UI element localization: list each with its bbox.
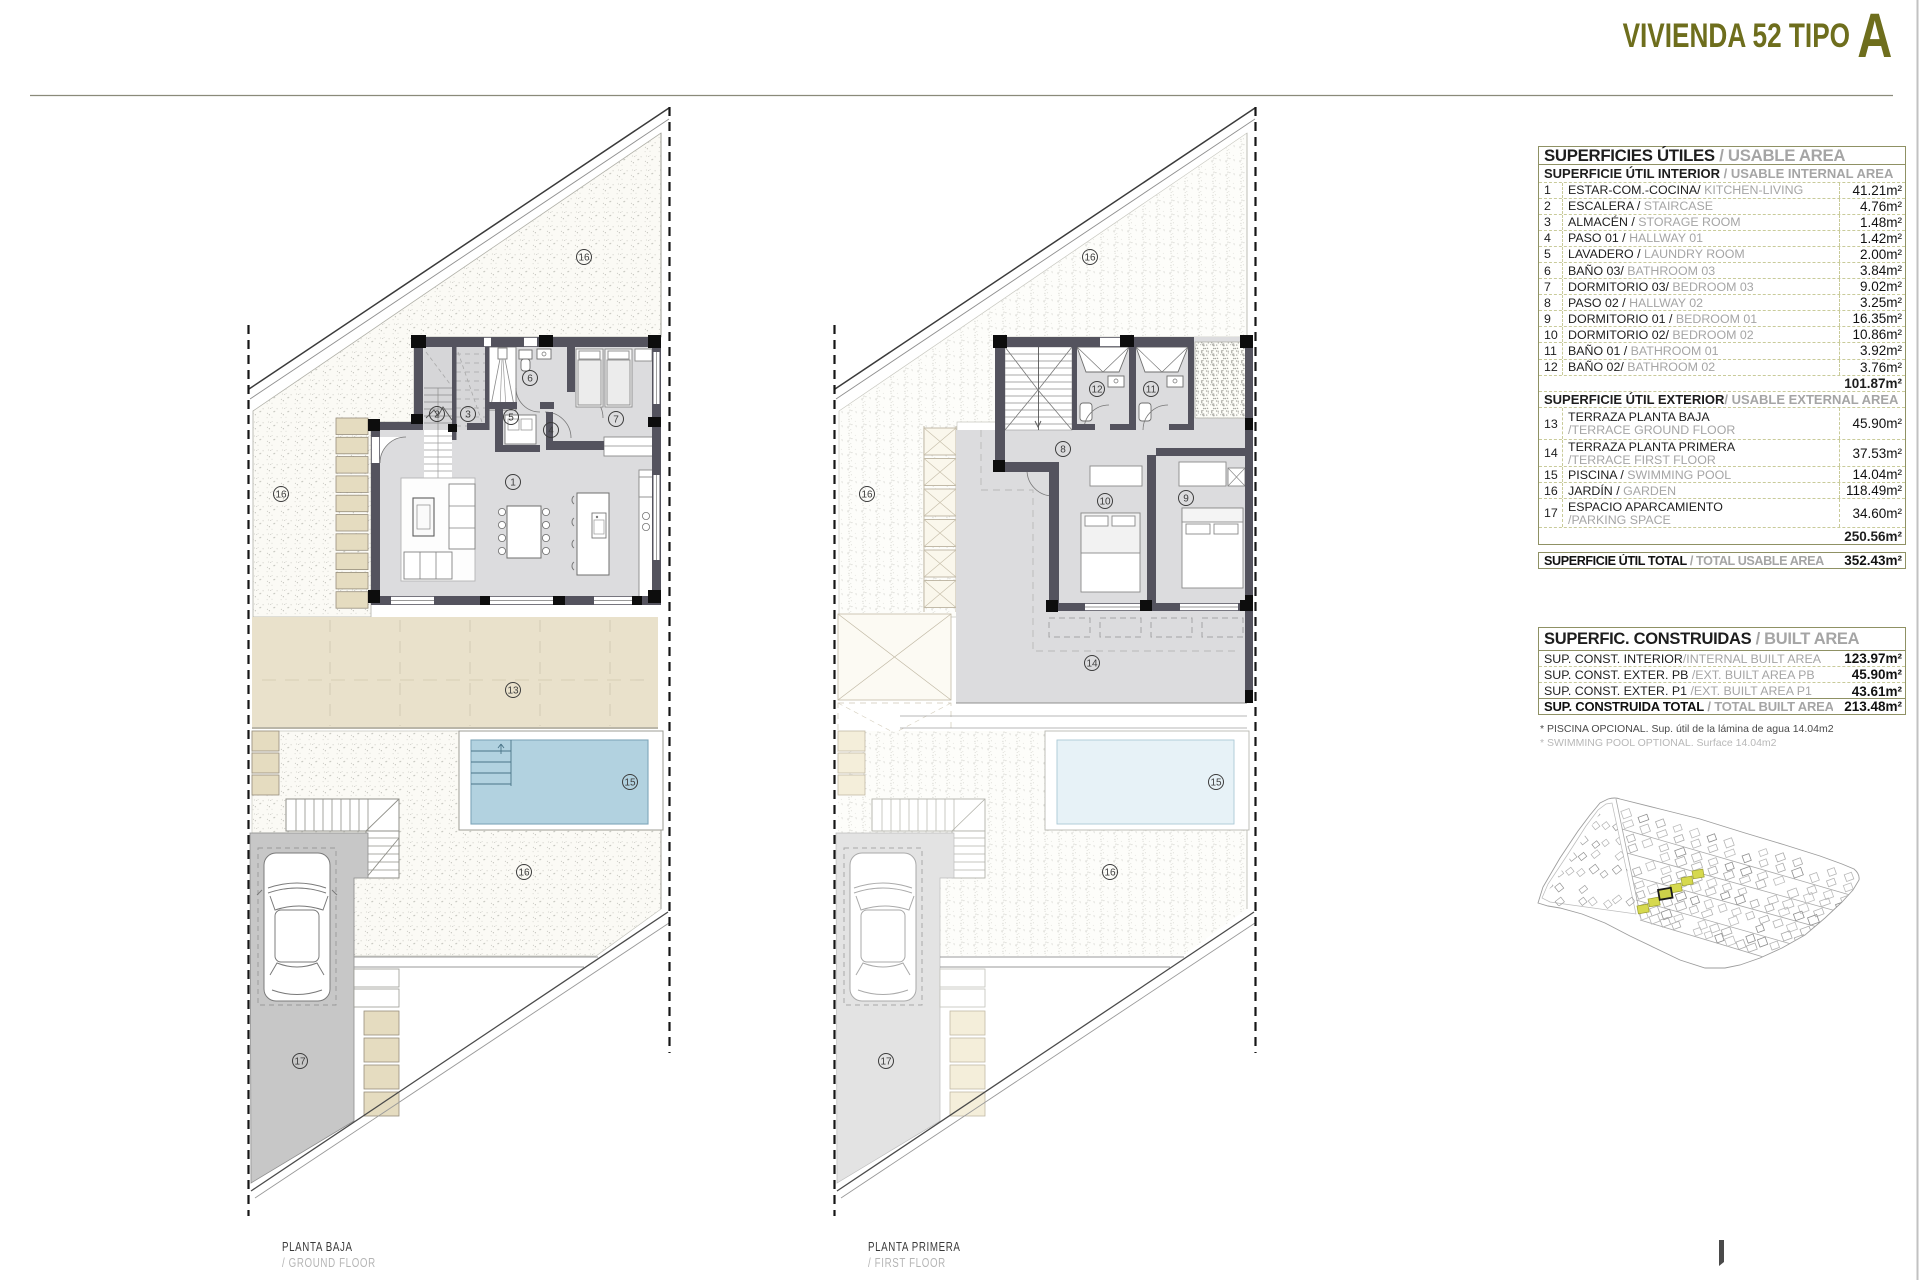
svg-text:3: 3 xyxy=(465,410,471,421)
svg-text:16: 16 xyxy=(518,868,530,879)
svg-text:2: 2 xyxy=(434,410,440,421)
svg-text:17: 17 xyxy=(880,1057,892,1068)
svg-text:15: 15 xyxy=(1210,778,1222,789)
svg-text:11: 11 xyxy=(1146,385,1157,396)
svg-text:1: 1 xyxy=(510,478,516,489)
svg-text:14: 14 xyxy=(1086,659,1098,670)
svg-text:16: 16 xyxy=(578,253,590,264)
svg-text:16: 16 xyxy=(1084,253,1096,264)
svg-text:15: 15 xyxy=(624,778,636,789)
svg-text:12: 12 xyxy=(1091,385,1103,396)
svg-text:10: 10 xyxy=(1099,497,1111,508)
svg-text:13: 13 xyxy=(507,686,519,697)
svg-text:17: 17 xyxy=(294,1057,306,1068)
svg-text:7: 7 xyxy=(613,415,619,426)
svg-text:16: 16 xyxy=(275,490,287,501)
svg-text:6: 6 xyxy=(527,374,533,385)
svg-text:16: 16 xyxy=(861,490,873,501)
svg-text:4: 4 xyxy=(548,426,554,437)
svg-text:9: 9 xyxy=(1183,494,1189,505)
svg-text:8: 8 xyxy=(1060,445,1066,456)
svg-text:16: 16 xyxy=(1104,868,1116,879)
svg-text:5: 5 xyxy=(508,413,514,424)
